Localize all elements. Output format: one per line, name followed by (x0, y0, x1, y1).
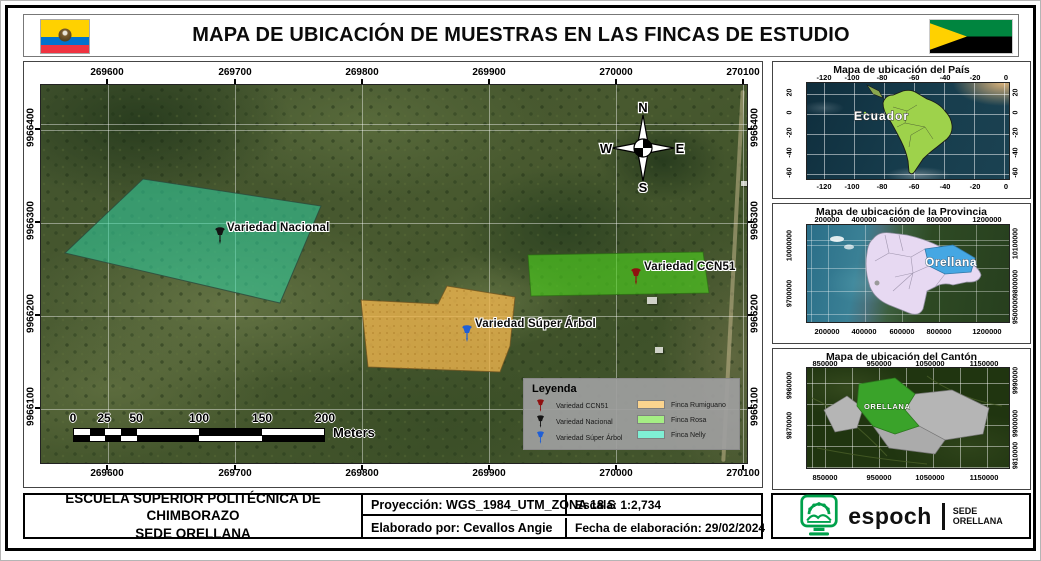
inset-province-map: Orellana (806, 224, 1010, 323)
pin-ccn51-icon (630, 268, 642, 285)
espoch-logo-box: espoch SEDE ORELLANA (771, 493, 1031, 539)
svg-text:E: E (676, 141, 685, 156)
legend-item-label: Variedad Nacional (556, 419, 613, 426)
x-tick-label: 800000 (917, 327, 961, 336)
province-label: Orellana (925, 255, 977, 269)
legend: Leyenda Variedad CCN51 Variedad Nacional… (523, 378, 740, 450)
x-tick-label: 800000 (917, 215, 961, 224)
projection-cell: Proyección: WGS_1984_UTM_ZONA 18 S (363, 495, 565, 516)
svg-text:W: W (600, 141, 613, 156)
x-tick-label: 0 (984, 182, 1028, 191)
espoch-logo-icon (799, 494, 839, 538)
scalebar-label: 100 (179, 411, 219, 425)
pin-nacional-icon (214, 227, 226, 244)
feature-label-super-arbol: Variedad Súper Árbol (475, 318, 596, 330)
logo-subtitle: SEDE ORELLANA (953, 506, 1003, 527)
x-tick-label: 950000 (857, 473, 901, 482)
compass-rose-icon: N S W E (598, 101, 688, 193)
scalebar-label: 150 (242, 411, 282, 425)
south-america-shape: Ecuador (807, 83, 1010, 180)
canton-label: ORELLANA (864, 402, 910, 411)
y-tick-label: 9810000 (1013, 434, 1020, 478)
inset-canton-map: ORELLANA (806, 367, 1010, 469)
institution-line1: ESCUELA SUPERIOR POLITÉCNICA DE CHIMBORA… (25, 490, 361, 525)
scalebar-label: 200 (305, 411, 345, 425)
x-tick-label: 269600 (77, 67, 137, 78)
x-tick-label: 1200000 (965, 215, 1009, 224)
pin-super-arbol-icon (461, 325, 473, 342)
logo-divider (942, 503, 945, 530)
map-layout-sheet: MAPA DE UBICACIÓN DE MUESTRAS EN LAS FIN… (0, 0, 1041, 561)
x-tick-label: 269900 (459, 67, 519, 78)
scale-bar (73, 428, 325, 442)
y-tick-label: 9960000 (787, 364, 794, 408)
finca-rosa-polygon (528, 252, 709, 296)
inset-canton-panel: Mapa de ubicación del Cantón 850000 9500… (772, 348, 1031, 490)
y-tick-label: 9700000 (787, 272, 794, 316)
legend-item-label: Finca Rosa (671, 417, 706, 424)
country-label: Ecuador (854, 109, 909, 123)
x-tick-label: 1200000 (965, 327, 1009, 336)
y-tick-label: 9870000 (787, 404, 794, 448)
x-tick-label: 850000 (803, 473, 847, 482)
legend-swatch-rosa (637, 415, 665, 424)
page-title: MAPA DE UBICACIÓN DE MUESTRAS EN LAS FIN… (24, 24, 1018, 47)
x-tick-label: 1050000 (908, 473, 952, 482)
legend-pin-ccn51-icon (536, 399, 545, 412)
svg-text:N: N (638, 101, 647, 115)
main-map: N S W E Variedad Nacional Variedad CCN51… (40, 84, 748, 464)
scale-cell: Escala: 1:2,734 (565, 495, 761, 516)
legend-swatch-nelly (637, 430, 665, 439)
legend-item-label: Finca Nelly (671, 432, 706, 439)
x-tick-label: 0 (984, 73, 1028, 82)
y-tick-label: 10000000 (787, 224, 794, 268)
feature-label-nacional: Variedad Nacional (227, 222, 329, 234)
y-tick-label: -60 (1013, 151, 1020, 195)
inset-country-map: Ecuador (806, 82, 1010, 180)
y-tick-label: -60 (787, 151, 794, 195)
feature-label-ccn51: Variedad CCN51 (644, 261, 736, 273)
legend-pin-super-arbol-icon (536, 431, 545, 444)
legend-item-label: Finca Rumiguano (671, 402, 726, 409)
y-tick-label: 10100000 (1013, 222, 1020, 266)
institution-cell: ESCUELA SUPERIOR POLITÉCNICA DE CHIMBORA… (25, 495, 363, 537)
x-tick-label: 1150000 (962, 473, 1006, 482)
legend-title: Leyenda (532, 383, 577, 395)
main-map-panel: 269600 269700 269800 269900 270000 27010… (23, 61, 763, 488)
x-tick-label: 270000 (586, 67, 646, 78)
legend-item-label: Variedad Súper Árbol (556, 435, 622, 442)
legend-item-label: Variedad CCN51 (556, 403, 608, 410)
author-cell: Elaborado por: Cevallos Angie (363, 518, 565, 539)
canton-shapes: ORELLANA (807, 368, 1010, 469)
scalebar-unit: Meters (333, 425, 375, 440)
y-tick-label: 9990000 (1013, 359, 1020, 403)
scalebar-label: 50 (116, 411, 156, 425)
finca-nelly-polygon (65, 179, 321, 303)
title-bar: MAPA DE UBICACIÓN DE MUESTRAS EN LAS FIN… (23, 14, 1019, 57)
inset-province-panel: Mapa de ubicación de la Provincia 200000… (772, 203, 1031, 344)
svg-text:S: S (639, 180, 648, 193)
date-cell: Fecha de elaboración: 29/02/2024 (565, 518, 761, 539)
x-tick-label: 270100 (713, 67, 773, 78)
orellana-flag-icon (929, 19, 1013, 54)
x-tick-label: 269700 (205, 67, 265, 78)
espoch-wordmark: espoch (848, 503, 932, 530)
legend-swatch-rumiguano (637, 400, 665, 409)
legend-pin-nacional-icon (536, 415, 545, 428)
footer-info-table: ESCUELA SUPERIOR POLITÉCNICA DE CHIMBORA… (23, 493, 763, 539)
y-tick-label: 9500000 (1013, 289, 1020, 333)
inset-country-panel: Mapa de ubicación del País -120 -100 -80… (772, 61, 1031, 199)
institution-line2: SEDE ORELLANA (25, 525, 361, 543)
x-tick-label: 269800 (332, 67, 392, 78)
ecuador-provinces-shape: Orellana (807, 225, 1010, 323)
